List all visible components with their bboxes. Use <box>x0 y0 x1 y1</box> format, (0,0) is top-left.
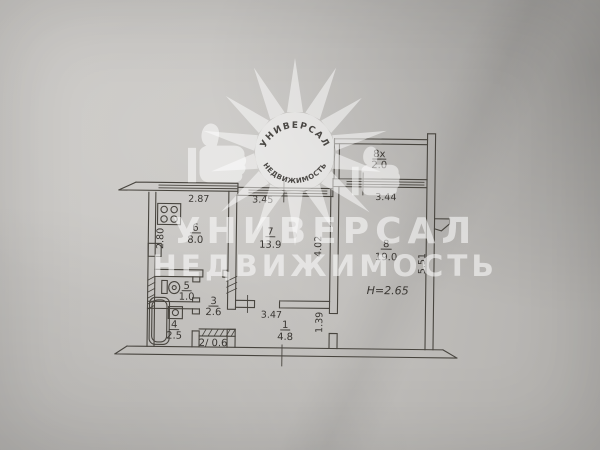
dim-kitchen-width: 2.87 <box>188 194 209 205</box>
room-label-closet: 2/ 0.6 <box>199 338 228 349</box>
floorplan-svg: 6 8.0 7 13.9 8 19.0 8х 2.0 5 <box>0 0 600 450</box>
window-kitchen <box>159 185 237 189</box>
room-label-corridor: 3 2.6 <box>205 296 221 318</box>
watermark-brand-line2: НЕДВИЖИМОСТЬ <box>152 249 498 283</box>
svg-text:3: 3 <box>210 296 217 307</box>
ceiling-height-label: H=2.65 <box>367 284 409 298</box>
svg-text:4: 4 <box>171 320 178 331</box>
hatching <box>147 275 237 336</box>
watermark: УНИВЕРСАЛ НЕДВИЖИМОСТЬ УНИВЕРСАЛ НЕДВИЖИ… <box>152 58 498 283</box>
floorplan-photo: 6 8.0 7 13.9 8 19.0 8х 2.0 5 <box>0 0 600 450</box>
svg-text:1.0: 1.0 <box>179 292 195 303</box>
watermark-brand-line1: УНИВЕРСАЛ <box>173 211 478 252</box>
svg-text:2.6: 2.6 <box>205 307 221 318</box>
wall-bottom <box>115 346 457 358</box>
room-label-bathroom: 4 2.5 <box>166 319 182 341</box>
room-label-hallway: 1 4.8 <box>277 320 293 343</box>
dim-hallway-width: 3.47 <box>261 310 282 321</box>
svg-text:2.5: 2.5 <box>166 330 182 341</box>
svg-text:4.8: 4.8 <box>277 332 293 343</box>
thumbs-up-left-icon <box>188 123 246 182</box>
room-label-wc: 5 1.0 <box>179 281 195 303</box>
hatch-closet <box>202 329 235 336</box>
svg-text:1: 1 <box>282 320 289 331</box>
dim-hallway-depth: 1.39 <box>314 312 325 333</box>
dim-kitchen-depth: 2.80 <box>155 228 166 249</box>
thumbs-up-right-icon <box>352 147 400 196</box>
wall-hallway-top <box>235 300 329 308</box>
svg-text:2/ 0.6: 2/ 0.6 <box>199 338 228 349</box>
